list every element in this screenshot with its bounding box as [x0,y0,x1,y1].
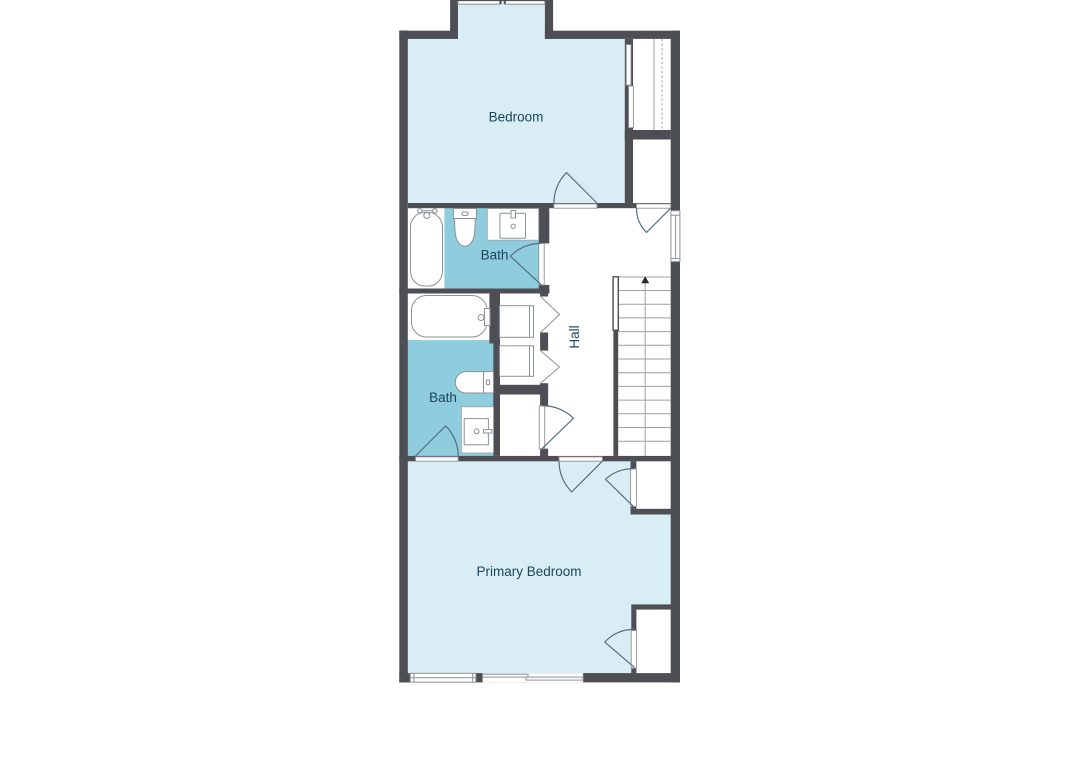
svg-text:Bath: Bath [481,248,509,263]
svg-text:Bedroom: Bedroom [489,110,544,125]
svg-text:Primary Bedroom: Primary Bedroom [476,564,581,579]
svg-text:Hall: Hall [567,325,582,348]
svg-text:Bath: Bath [429,390,457,405]
